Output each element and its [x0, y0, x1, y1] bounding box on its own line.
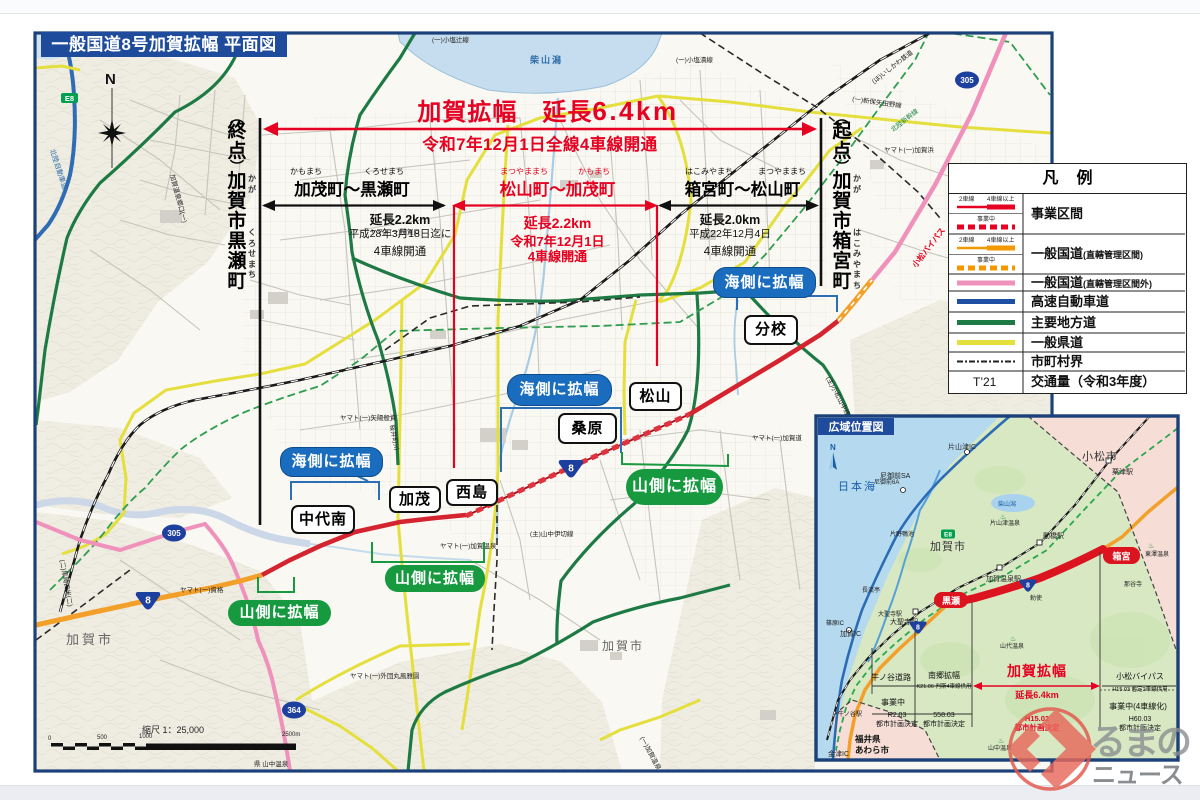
svg-text:ヤマト(一)加賀浜: ヤマト(一)加賀浜 — [884, 145, 934, 154]
svg-text:加賀IC: 加賀IC — [840, 629, 861, 638]
svg-text:8: 8 — [145, 596, 151, 607]
svg-text:柴山潟: 柴山潟 — [998, 500, 1016, 508]
svg-text:♨: ♨ — [1000, 513, 1006, 521]
svg-text:大聖寺駅: 大聖寺駅 — [878, 610, 902, 618]
svg-text:(一)小塩辻線: (一)小塩辻線 — [432, 35, 469, 44]
svg-text:E8: E8 — [65, 94, 74, 103]
svg-text:尼御前SA: 尼御前SA — [880, 471, 911, 480]
svg-text:市町村界: 市町村界 — [1031, 354, 1083, 369]
svg-text:あわら市: あわら市 — [855, 745, 890, 755]
svg-text:♨: ♨ — [1010, 635, 1016, 643]
svg-text:8: 8 — [1026, 583, 1030, 590]
svg-text:一般国道(直轄管理区間外): 一般国道(直轄管理区間外) — [1031, 275, 1152, 290]
svg-text:2車線: 2車線 — [959, 195, 974, 203]
svg-text:ヤマト(一)資格: ヤマト(一)資格 — [180, 585, 224, 594]
svg-text:ヤマト(一)矢陽般資: ヤマト(一)矢陽般資 — [340, 413, 397, 422]
svg-text:南郷拡幅: 南郷拡幅 — [928, 670, 960, 680]
svg-text:尼御前6A: 尼御前6A — [874, 478, 899, 486]
svg-text:都市計画決定: 都市計画決定 — [876, 719, 918, 728]
svg-text:305: 305 — [960, 76, 974, 85]
svg-text:交通量（令和3年度）: 交通量（令和3年度） — [1031, 374, 1155, 389]
svg-text:8: 8 — [916, 625, 920, 632]
svg-text:一般国道(直轄管理区間): 一般国道(直轄管理区間) — [1031, 246, 1143, 261]
svg-text:E8: E8 — [944, 532, 952, 539]
svg-text:那谷寺: 那谷寺 — [1124, 580, 1142, 588]
svg-text:4車線以上: 4車線以上 — [987, 195, 1014, 203]
svg-text:2車線: 2車線 — [959, 236, 974, 244]
svg-text:4車線以上: 4車線以上 — [987, 236, 1014, 244]
svg-text:N: N — [105, 71, 116, 88]
svg-text:事業中: 事業中 — [881, 697, 905, 707]
svg-text:長流亭: 長流亭 — [862, 586, 880, 594]
svg-text:勅使: 勅使 — [1030, 594, 1042, 602]
svg-text:事業中: 事業中 — [977, 215, 995, 223]
svg-text:(主)山中伊切線: (主)山中伊切線 — [530, 529, 574, 538]
svg-text:加賀温泉駅: 加賀温泉駅 — [986, 574, 1021, 583]
svg-text:T’21: T’21 — [973, 375, 997, 389]
svg-text:1000: 1000 — [139, 734, 153, 740]
svg-text:事業区間: 事業区間 — [1031, 206, 1083, 221]
svg-text:高速自動車道: 高速自動車道 — [1031, 294, 1109, 309]
svg-text:牛ノ谷道路: 牛ノ谷道路 — [871, 672, 911, 682]
svg-text:柴山潟: 柴山潟 — [529, 54, 563, 65]
svg-text:広域位置図: 広域位置図 — [829, 420, 884, 434]
svg-text:(一)小塩漬線: (一)小塩漬線 — [676, 55, 713, 64]
svg-text:事業中: 事業中 — [977, 256, 995, 264]
svg-text:ヤマト(一)加賀温泉: ヤマト(一)加賀温泉 — [440, 541, 497, 550]
svg-text:東澤温泉: 東澤温泉 — [1145, 550, 1169, 558]
svg-text:加賀拡幅: 加賀拡幅 — [1006, 663, 1067, 679]
svg-text:K21.06 判斯4車線供用: K21.06 判斯4車線供用 — [916, 682, 971, 690]
svg-text:加賀市: 加賀市 — [66, 632, 114, 647]
svg-text:金津IC: 金津IC — [828, 749, 849, 758]
svg-text:山代温泉: 山代温泉 — [1000, 642, 1024, 650]
svg-text:558.03: 558.03 — [933, 712, 955, 719]
svg-text:N: N — [830, 443, 836, 452]
svg-text:R2.03: R2.03 — [888, 712, 907, 719]
svg-text:片野鴨池: 片野鴨池 — [890, 530, 914, 538]
svg-text:篠原IC: 篠原IC — [826, 619, 845, 627]
svg-text:♨: ♨ — [1148, 542, 1154, 550]
svg-text:都市計画決定: 都市計画決定 — [923, 719, 965, 728]
svg-text:加賀市: 加賀市 — [602, 638, 644, 653]
svg-text:るまの: るまの — [1090, 721, 1190, 762]
svg-text:2500m: 2500m — [282, 732, 300, 738]
svg-text:ニュース: ニュース — [1092, 762, 1183, 789]
svg-text:県 山中温泉: 県 山中温泉 — [254, 759, 289, 768]
svg-text:一般県道: 一般県道 — [1031, 335, 1083, 350]
svg-text:主要地方道: 主要地方道 — [1031, 315, 1096, 330]
svg-text:305: 305 — [167, 529, 181, 538]
svg-text:小松市: 小松市 — [1082, 449, 1118, 463]
svg-text:500: 500 — [97, 735, 108, 741]
svg-text:ヤマト(一)外団丸風雅園: ヤマト(一)外団丸風雅園 — [350, 671, 419, 680]
svg-text:8: 8 — [568, 464, 574, 475]
svg-text:364: 364 — [287, 706, 301, 715]
svg-text:小松バイパス: 小松バイパス — [1116, 671, 1164, 681]
svg-text:牛ノ谷駅: 牛ノ谷駅 — [838, 710, 862, 718]
svg-text:片山津IC: 片山津IC — [948, 442, 976, 451]
svg-text:粟津駅: 粟津駅 — [1112, 468, 1133, 476]
svg-text:動橋駅: 動橋駅 — [1043, 531, 1064, 540]
svg-text:箱宮: 箱宮 — [1112, 551, 1130, 562]
svg-text:加賀市: 加賀市 — [930, 539, 966, 553]
svg-text:福井県: 福井県 — [854, 734, 881, 744]
svg-text:日本海: 日本海 — [838, 479, 877, 493]
svg-text:ヤマト(一)加賀道: ヤマト(一)加賀道 — [752, 433, 802, 442]
svg-text:黒瀬: 黒瀬 — [942, 595, 960, 606]
